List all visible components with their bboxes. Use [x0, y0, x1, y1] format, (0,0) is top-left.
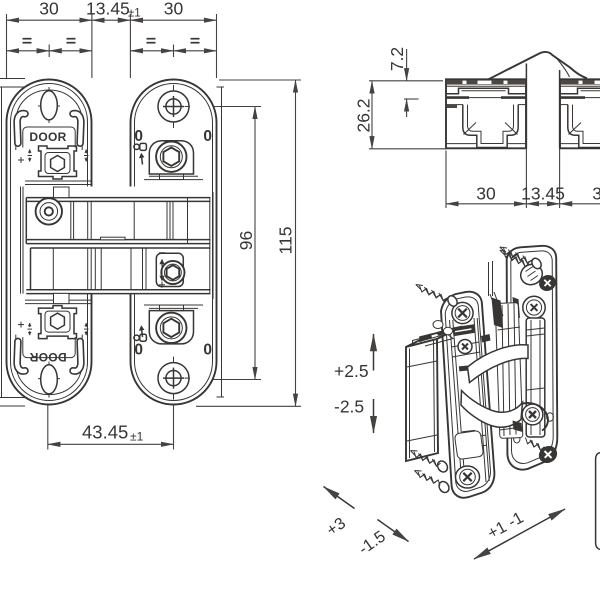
svg-text:-2.5: -2.5: [334, 397, 364, 417]
svg-text:115: 115: [276, 227, 296, 255]
svg-text:13.45: 13.45: [86, 0, 130, 19]
svg-text:30: 30: [592, 184, 600, 204]
svg-text:DOOR: DOOR: [29, 350, 66, 364]
svg-text:26.2: 26.2: [354, 98, 374, 132]
svg-text:0: 0: [134, 128, 143, 145]
svg-text:+3: +3: [323, 514, 349, 540]
svg-text:DOOR: DOOR: [29, 130, 66, 144]
svg-text:30: 30: [39, 0, 59, 19]
svg-text:0: 0: [203, 128, 212, 145]
svg-text:96: 96: [236, 231, 256, 250]
svg-text:43.45: 43.45: [82, 422, 128, 443]
svg-text:30: 30: [164, 0, 184, 19]
svg-text:±1: ±1: [128, 8, 141, 20]
svg-text:+2.5: +2.5: [334, 361, 369, 381]
svg-text:13.45: 13.45: [521, 184, 565, 204]
svg-text:7.2: 7.2: [387, 47, 407, 71]
svg-text:30: 30: [476, 184, 496, 204]
svg-text:-1.5: -1.5: [355, 527, 389, 558]
svg-text:+1 -1: +1 -1: [485, 509, 527, 543]
svg-text:±1: ±1: [130, 430, 144, 444]
